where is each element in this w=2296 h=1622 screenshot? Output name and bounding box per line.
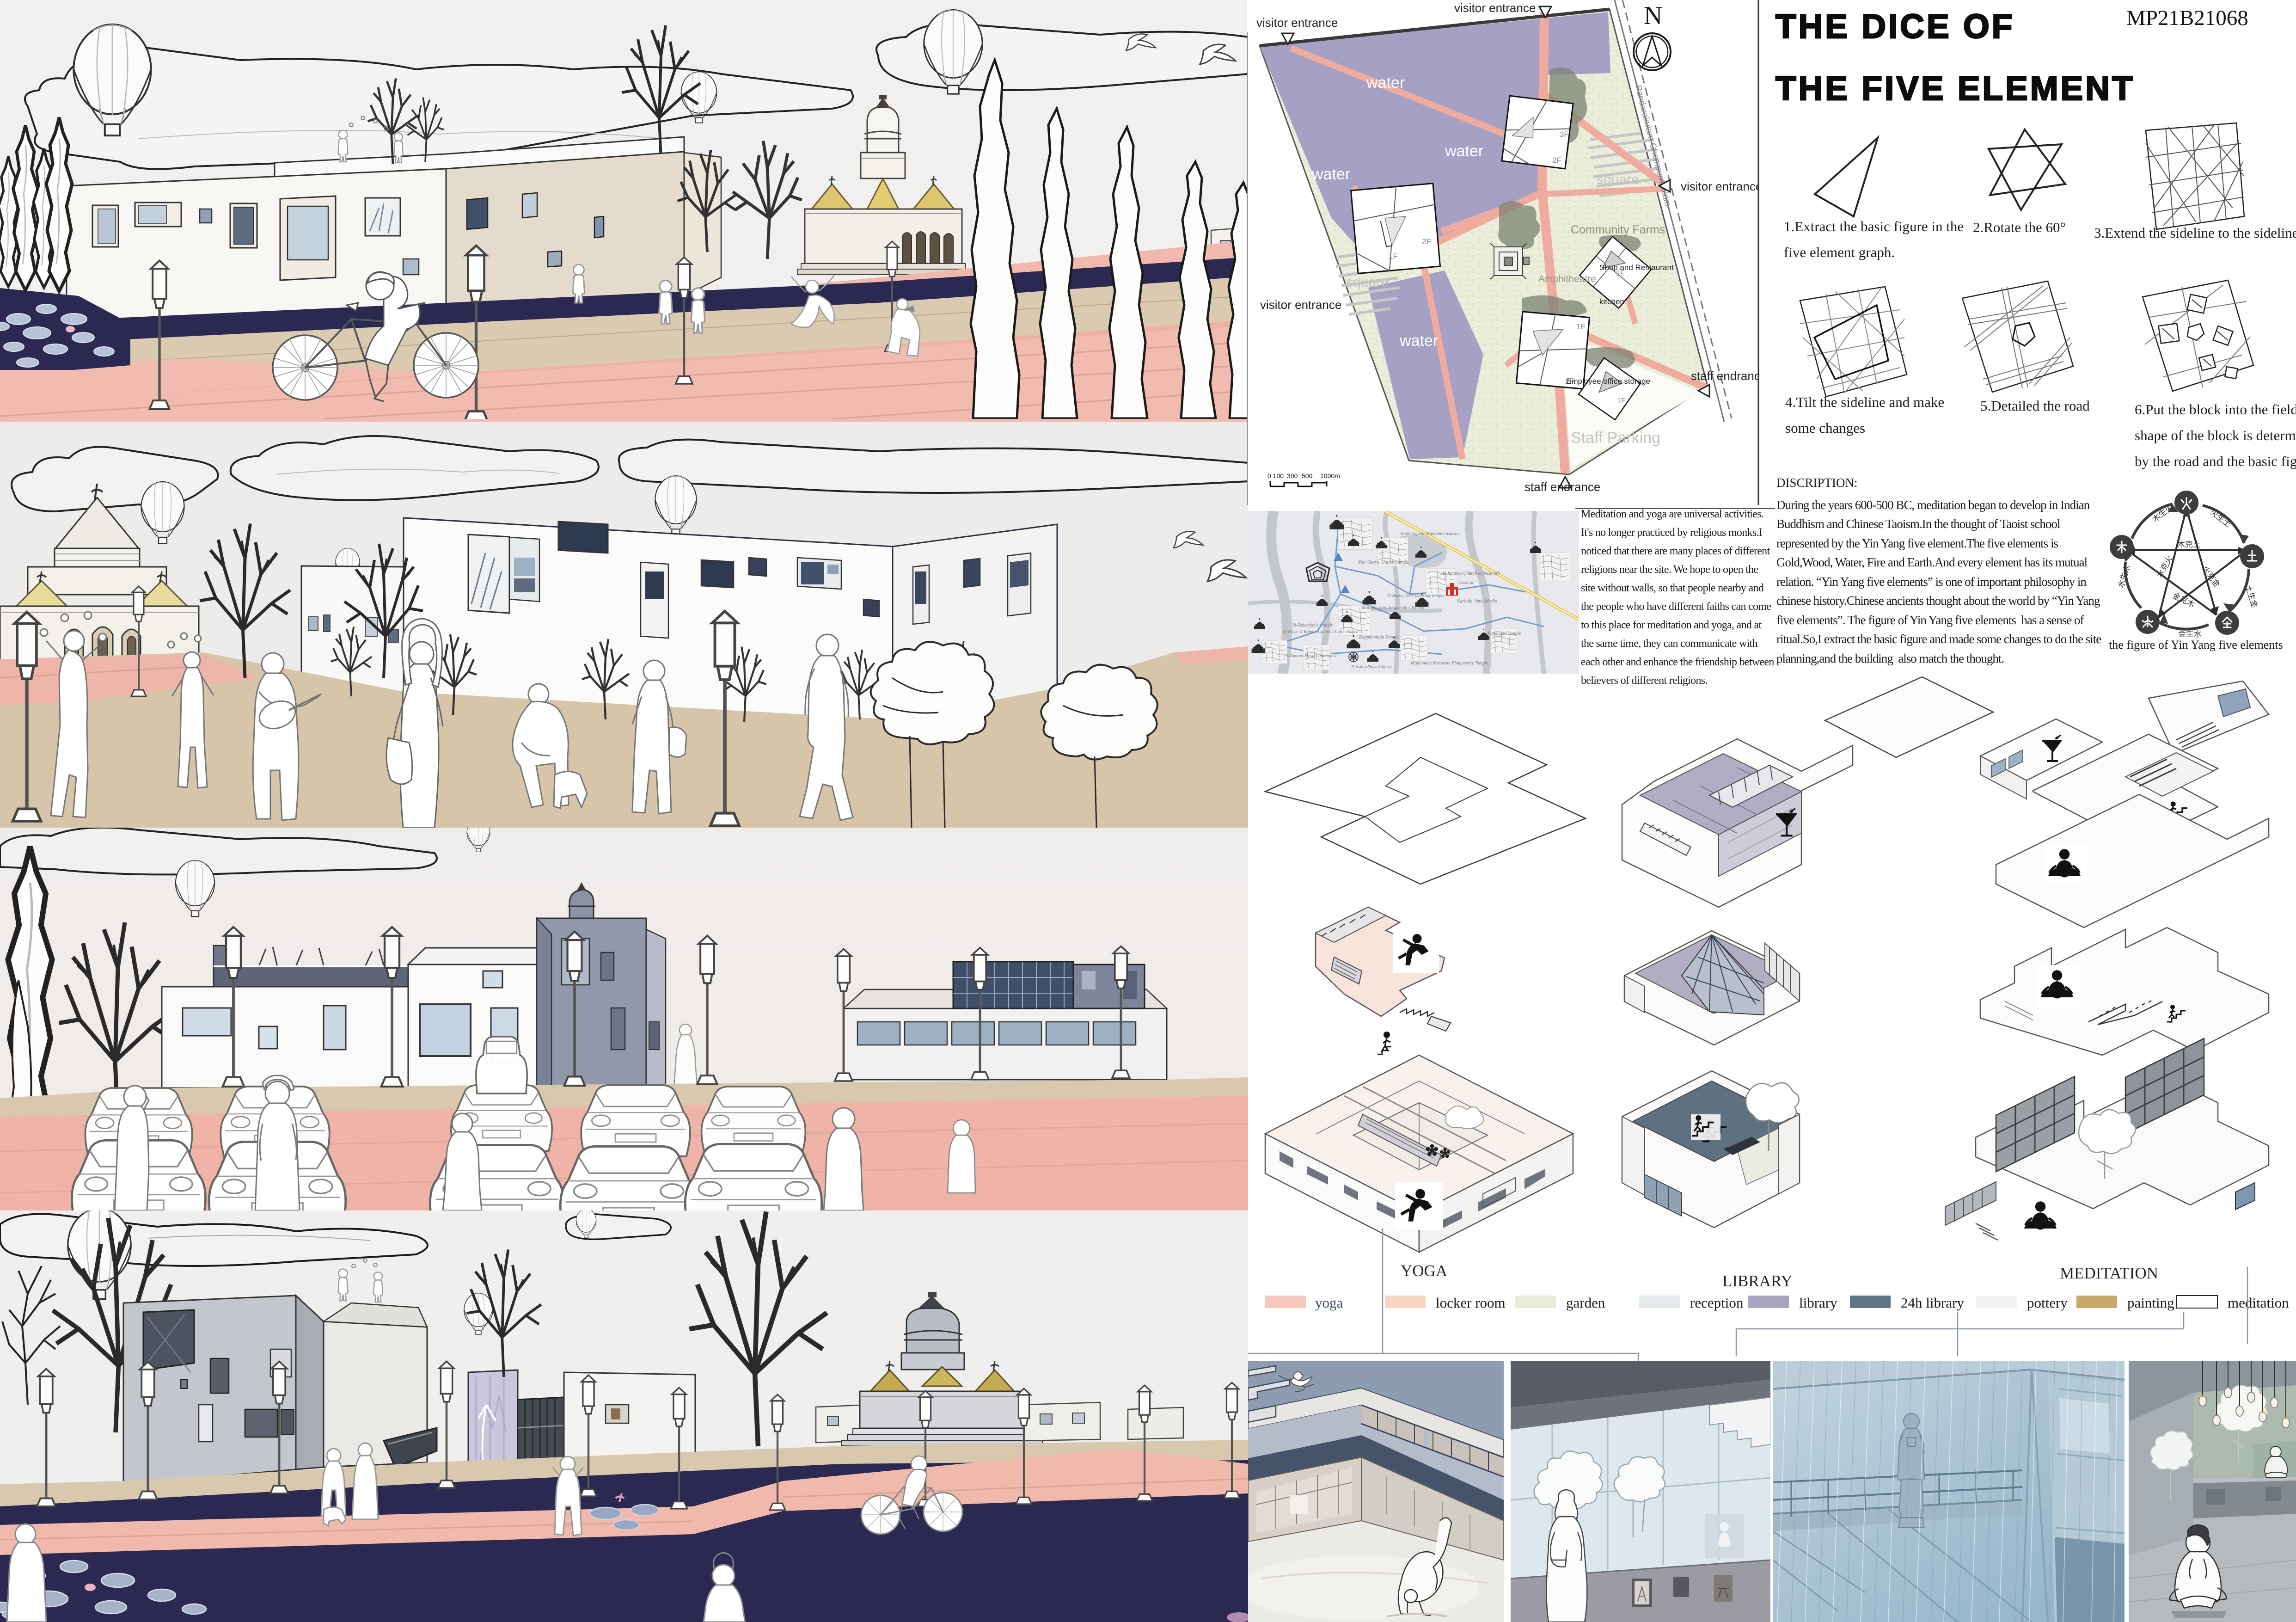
svg-text:N: N [1644, 1, 1662, 30]
svg-text:by the road and the basic figu: by the road and the basic figure. [2135, 453, 2296, 469]
svg-text:painting: painting [2127, 1295, 2174, 1311]
svg-text:Mar Sleeva Church painga: Mar Sleeva Church painga [1358, 560, 1408, 565]
svg-text:金克木: 金克木 [2171, 591, 2196, 609]
svg-text:500: 500 [1302, 472, 1313, 479]
svg-text:some changes: some changes [1785, 420, 1865, 436]
svg-text:Employee office storage: Employee office storage [1566, 377, 1650, 386]
svg-text:3F: 3F [1560, 130, 1569, 139]
svg-text:Karbala Juma Mesjid: Karbala Juma Mesjid [1457, 599, 1498, 604]
svg-text:0 100: 0 100 [1267, 472, 1284, 479]
svg-text:1F: 1F [1389, 252, 1398, 261]
svg-text:visitor entrance: visitor entrance [1260, 298, 1341, 312]
svg-text:Thiruhridhaya Church: Thiruhridhaya Church [1351, 664, 1392, 670]
svg-text:1.Extract the basic figure in: 1.Extract the basic figure in the [1784, 218, 1964, 234]
svg-text:Community Farms: Community Farms [1571, 223, 1665, 236]
svg-text:staff endrance: staff endrance [1525, 480, 1600, 494]
svg-text:visitor entrance: visitor entrance [1454, 1, 1536, 15]
svg-text:4.Tilt the sideline and make: 4.Tilt the sideline and make [1785, 394, 1944, 410]
svg-text:3.Extend the sideline to the s: 3.Extend the sideline to the sideline of… [2094, 225, 2296, 241]
svg-text:reception: reception [1690, 1295, 1744, 1311]
svg-text:At-Jeromes Church of Nazareth: At-Jeromes Church of Nazareth [1441, 571, 1500, 576]
svg-text:Panthoppadu Kudumba ashram: Panthoppadu Kudumba ashram [1400, 531, 1460, 536]
svg-text:300: 300 [1287, 472, 1298, 479]
svg-text:1F: 1F [1576, 322, 1586, 331]
svg-text:2F: 2F [1552, 156, 1561, 165]
svg-text:Shop and Restaurant: Shop and Restaurant [1599, 263, 1674, 272]
svg-text:meditation: meditation [2228, 1295, 2289, 1311]
svg-text:St-Pious X Roman Catholic Lati: St-Pious X Roman Catholic Latin church [1283, 629, 1359, 634]
svg-text:visitor entrance: visitor entrance [1256, 16, 1338, 30]
svg-text:kitchen: kitchen [1599, 297, 1624, 306]
svg-text:locker room: locker room [1436, 1295, 1506, 1311]
svg-text:visitor entrance: visitor entrance [1681, 179, 1759, 193]
svg-text:water: water [1445, 142, 1483, 160]
svg-text:火克金: 火克金 [2201, 565, 2222, 589]
svg-text:LIBRARY: LIBRARY [1722, 1272, 1793, 1290]
svg-text:square: square [1346, 275, 1389, 290]
svg-text:水生木: 水生木 [2116, 564, 2132, 589]
svg-text:Staff Parking: Staff Parking [1571, 429, 1660, 447]
svg-text:24h library: 24h library [1901, 1295, 1964, 1311]
svg-text:YOGA: YOGA [1401, 1262, 1448, 1280]
svg-text:Kappumthala Temple: Kappumthala Temple [1359, 635, 1399, 640]
svg-text:hospital: hospital [1458, 580, 1473, 585]
svg-text:library: library [1799, 1295, 1837, 1311]
svg-text:square: square [1597, 172, 1639, 187]
svg-text:木克土: 木克土 [2177, 540, 2201, 549]
svg-text:1F: 1F [1616, 270, 1625, 277]
svg-text:shape of the block is determin: shape of the block is determined [2135, 427, 2296, 443]
svg-text:金生水: 金生水 [2178, 630, 2202, 639]
svg-text:1000m: 1000m [1320, 472, 1340, 479]
svg-text:土生金: 土生金 [2243, 584, 2259, 609]
svg-text:pottery: pottery [2027, 1295, 2068, 1311]
svg-text:five element graph.: five element graph. [1784, 244, 1895, 260]
svg-text:MEDITATION: MEDITATION [2060, 1264, 2158, 1282]
svg-text:garden: garden [1566, 1295, 1605, 1311]
svg-text:Panangad Temple: Panangad Temple [1487, 631, 1521, 636]
svg-text:staff endrance: staff endrance [1691, 369, 1759, 383]
svg-text:Amphitheatre: Amphitheatre [1538, 274, 1596, 284]
svg-text:St-Sebastian's church: St-Sebastian's church [1292, 623, 1332, 628]
svg-text:water: water [1311, 166, 1350, 183]
svg-text:6.Put the block into the field: 6.Put the block into the field.The [2135, 401, 2296, 418]
svg-text:1F: 1F [1617, 397, 1626, 405]
svg-text:5.Detailed the road: 5.Detailed the road [1980, 398, 2090, 414]
svg-text:2.Rotate the 60°: 2.Rotate the 60° [1973, 219, 2066, 235]
svg-text:2F: 2F [1422, 237, 1431, 246]
svg-text:water: water [1366, 74, 1405, 92]
svg-text:yoga: yoga [1315, 1295, 1343, 1311]
svg-text:Thakazhy Sree Dharma Temple: Thakazhy Sree Dharma Temple [1387, 593, 1445, 598]
svg-text:Mudumady Kottaram Bhagavathy T: Mudumady Kottaram Bhagavathy Temple [1410, 661, 1488, 666]
svg-text:water: water [1399, 332, 1438, 350]
svg-text:Pothassea Mesjid Punnapra: Pothassea Mesjid Punnapra [1284, 653, 1336, 658]
svg-text:Mathoor Srea Bhagavathi Temple: Mathoor Srea Bhagavathi Temple [1361, 605, 1425, 610]
